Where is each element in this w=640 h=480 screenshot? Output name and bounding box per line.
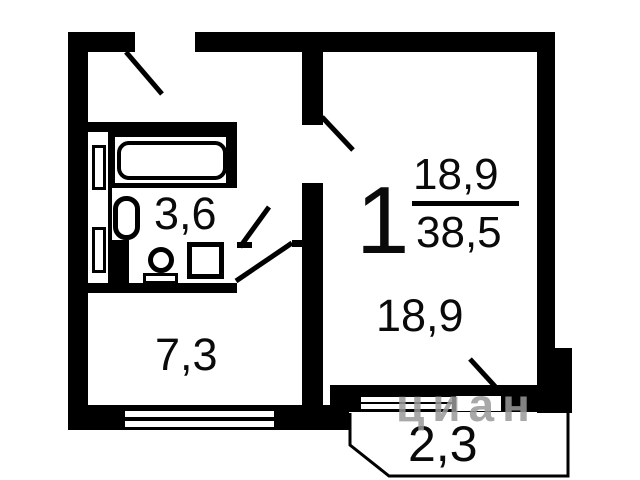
room-number: 1: [356, 173, 409, 269]
wall-top: [195, 32, 555, 52]
wall-bathroom-bottom: [84, 283, 237, 293]
wall-partition-lower: [302, 183, 323, 412]
sink-pedestal: [143, 273, 178, 284]
watermark: циан: [396, 378, 538, 432]
stove: [187, 242, 224, 279]
kitchen-door-swing: [236, 243, 292, 281]
kitchen-window-slit: [125, 421, 274, 427]
bathtub: [117, 141, 227, 180]
wall-partition-upper: [302, 52, 323, 125]
wall-doorway-stub-right: [292, 240, 302, 247]
kitchen-window-slit: [125, 411, 274, 417]
vent-shaft-box: [92, 145, 106, 190]
entrance-door-swing: [126, 52, 162, 94]
sink: [148, 247, 174, 273]
kitchen-area-label: 7,3: [155, 332, 218, 377]
room-door-swing: [322, 117, 353, 150]
wall-doorway-stub-left: [237, 242, 252, 248]
area-fraction-line: [412, 201, 519, 206]
floor-plan: 3,6 7,3 1 18,9 38,5 18,9 2,3 циан: [0, 0, 640, 480]
total-area-label: 38,5: [416, 211, 502, 255]
wall-right-upper: [537, 32, 555, 348]
wall-left: [68, 32, 88, 430]
wall-bathroom-top: [88, 122, 237, 132]
bathroom-door-swing: [240, 207, 269, 247]
living-area-label: 18,9: [413, 153, 499, 197]
toilet-tank: [110, 240, 129, 284]
bathroom-area-label: 3,6: [154, 191, 217, 236]
living-floor-area-label: 18,9: [376, 293, 464, 338]
vent-shaft-box: [92, 227, 106, 273]
toilet: [113, 196, 140, 240]
